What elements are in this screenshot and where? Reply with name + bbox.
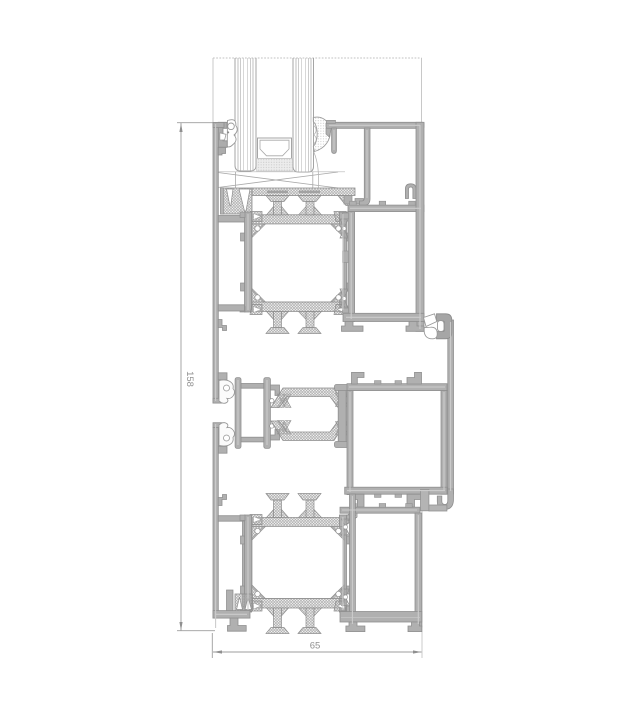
svg-text:65: 65: [310, 641, 321, 652]
svg-text:158: 158: [184, 371, 195, 387]
